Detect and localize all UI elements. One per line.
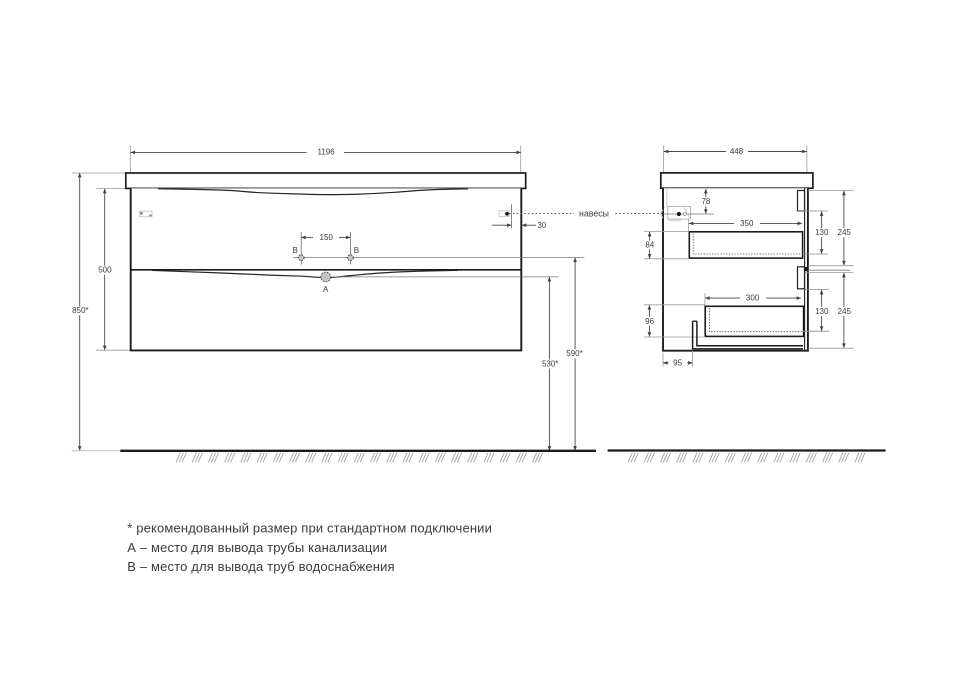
svg-text:300: 300 [746, 294, 760, 303]
svg-text:590*: 590* [566, 349, 582, 358]
svg-text:1196: 1196 [317, 148, 335, 157]
svg-text:245: 245 [838, 307, 852, 316]
svg-text:95: 95 [673, 359, 682, 368]
svg-text:245: 245 [838, 228, 852, 237]
svg-text:А – место для вывода трубы кан: А – место для вывода трубы канализации [127, 540, 387, 555]
svg-text:A: A [323, 285, 329, 294]
svg-text:850*: 850* [72, 306, 88, 315]
svg-text:* рекомендованный размер при с: * рекомендованный размер при стандартном… [127, 521, 492, 536]
svg-text:448: 448 [730, 147, 744, 156]
svg-text:500: 500 [98, 266, 112, 275]
svg-text:150: 150 [320, 233, 334, 242]
svg-text:130: 130 [815, 228, 829, 237]
svg-text:96: 96 [645, 317, 654, 326]
svg-text:B: B [354, 246, 359, 255]
svg-text:78: 78 [701, 197, 710, 206]
svg-text:350: 350 [740, 219, 754, 228]
svg-text:84: 84 [645, 241, 654, 250]
svg-text:130: 130 [815, 307, 829, 316]
svg-text:530*: 530* [542, 359, 558, 368]
svg-text:В – место для вывода труб водо: В – место для вывода труб водоснабжения [127, 559, 394, 574]
svg-text:B: B [293, 246, 298, 255]
svg-text:30: 30 [537, 221, 546, 230]
svg-text:навесы: навесы [579, 208, 609, 218]
